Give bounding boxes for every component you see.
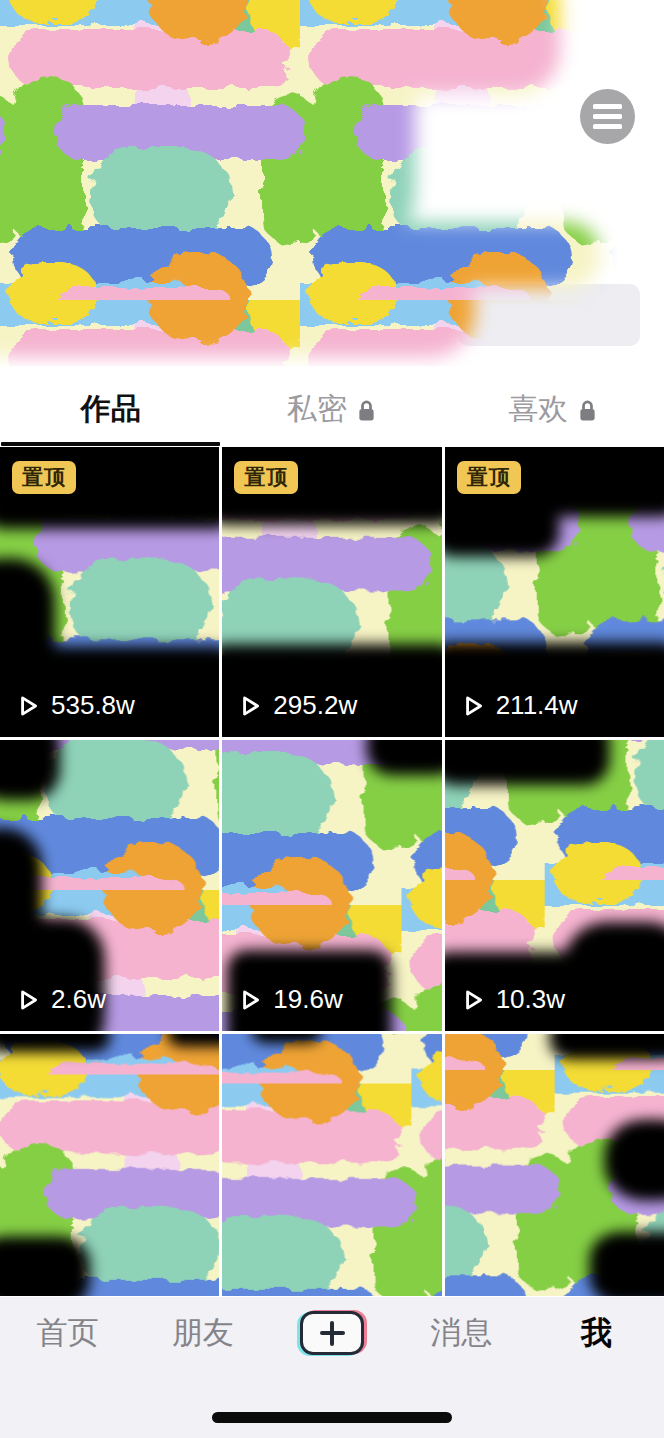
- bottom-nav: 首页 朋友 消息 我: [0, 1297, 664, 1438]
- tab-private-label: 私密: [287, 389, 347, 430]
- play-count: 211.4w: [460, 690, 578, 721]
- active-tab-indicator: [1, 442, 220, 446]
- nav-friends-label: 朋友: [172, 1312, 234, 1354]
- play-count-value: 10.3w: [496, 984, 565, 1015]
- play-count-value: 19.6w: [273, 984, 342, 1015]
- video-thumbnail: [222, 1034, 441, 1296]
- video-tile[interactable]: [445, 1034, 664, 1296]
- tab-likes-label: 喜欢: [508, 389, 568, 430]
- tab-works[interactable]: 作品: [0, 380, 221, 447]
- nav-create-slot: [270, 1297, 393, 1369]
- video-tile[interactable]: 置顶 295.2w: [222, 447, 441, 737]
- profile-header: [0, 0, 664, 380]
- video-thumbnail: [0, 1034, 219, 1296]
- lock-icon: [356, 399, 377, 423]
- play-count: 10.3w: [460, 984, 565, 1015]
- nav-messages-label: 消息: [430, 1312, 492, 1354]
- tab-works-label: 作品: [81, 389, 141, 430]
- play-outline-icon: [460, 693, 486, 719]
- home-indicator: [212, 1412, 452, 1423]
- play-count-value: 211.4w: [496, 690, 578, 721]
- play-outline-icon: [15, 693, 41, 719]
- tab-likes[interactable]: 喜欢: [443, 380, 664, 447]
- video-tile[interactable]: [0, 1034, 219, 1296]
- content-tabs: 作品 私密 喜欢: [0, 380, 664, 447]
- tab-private[interactable]: 私密: [221, 380, 442, 447]
- menu-button[interactable]: [580, 89, 635, 144]
- douyin-profile-screen: 作品 私密 喜欢 置顶: [0, 0, 664, 1438]
- nav-home[interactable]: 首页: [0, 1297, 135, 1369]
- pinned-badge: 置顶: [234, 461, 298, 494]
- play-count: 19.6w: [237, 984, 342, 1015]
- play-count-value: 295.2w: [273, 690, 357, 721]
- play-count-value: 535.8w: [51, 690, 135, 721]
- video-thumbnail: [445, 1034, 664, 1296]
- nav-messages[interactable]: 消息: [394, 1297, 529, 1369]
- pinned-badge: 置顶: [457, 461, 521, 494]
- nav-friends[interactable]: 朋友: [135, 1297, 270, 1369]
- play-count-value: 2.6w: [51, 984, 106, 1015]
- video-tile[interactable]: [222, 1034, 441, 1296]
- video-tile[interactable]: 2.6w: [0, 740, 219, 1031]
- hamburger-menu-icon: [593, 104, 622, 110]
- play-outline-icon: [460, 987, 486, 1013]
- play-outline-icon: [237, 693, 263, 719]
- create-button[interactable]: [300, 1311, 364, 1355]
- nav-me-label: 我: [581, 1312, 612, 1354]
- nav-home-label: 首页: [37, 1312, 99, 1354]
- censor-paint-overlay: [0, 0, 664, 366]
- play-count: 535.8w: [15, 690, 135, 721]
- lock-icon: [577, 399, 598, 423]
- play-count: 2.6w: [15, 984, 106, 1015]
- play-outline-icon: [237, 987, 263, 1013]
- video-tile[interactable]: 10.3w: [445, 740, 664, 1031]
- play-outline-icon: [15, 987, 41, 1013]
- video-tile[interactable]: 置顶 211.4w: [445, 447, 664, 737]
- pinned-badge: 置顶: [12, 461, 76, 494]
- nav-me[interactable]: 我: [529, 1297, 664, 1369]
- video-grid: 置顶 535.8w 置顶 295.2w: [0, 447, 664, 1297]
- play-count: 295.2w: [237, 690, 357, 721]
- video-tile[interactable]: 置顶 535.8w: [0, 447, 219, 737]
- video-tile[interactable]: 19.6w: [222, 740, 441, 1031]
